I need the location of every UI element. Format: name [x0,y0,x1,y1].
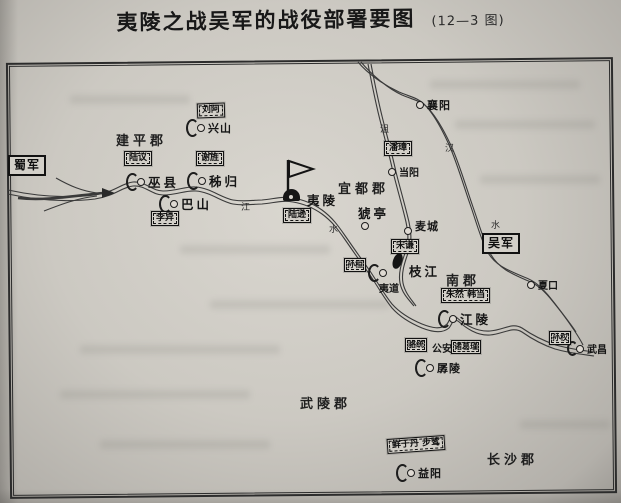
town-circle-icon [198,177,206,185]
river-fork-upper [56,178,97,193]
unit-box-liu-a: 刘阿 [197,103,226,119]
unit-box-zhu-ran-han-dang: 朱然 韩当 [441,288,490,303]
town-circle-icon [137,178,145,186]
wu-army-text: 吴军 [488,236,514,250]
place-label: 江陵 [460,309,491,328]
place-label: 当阳 [399,164,419,179]
place-xiakou: 夏口 [527,277,558,292]
river-label-jiang: 江 [241,200,250,213]
town-circle-icon [576,345,584,353]
region-changsha: 长沙郡 [487,449,538,468]
bleedthrough-smudge [70,95,190,104]
title-bar: 夷陵之战吴军的战役部署要图 (12—3 图) [0,0,621,38]
shu-advance-arrow [18,193,103,199]
river-label-shui2: 水 [491,218,500,231]
unit-box-xianyu-dan-bu-zhi: 鲜于丹 步骘 [387,435,446,454]
unit-box-li-yi: 李异 [151,211,179,226]
town-circle-icon [379,269,387,277]
town-circle-icon [170,200,178,208]
book-page: 夷陵之战吴军的战役部署要图 (12—3 图) 蜀军 吴军 建平郡 宜都郡 南郡 … [0,0,621,503]
wu-army-label: 吴军 [482,233,520,254]
place-label: 麦城 [415,218,439,234]
region-jianping: 建平郡 [116,130,167,149]
town-circle-icon [404,227,412,235]
place-label: 襄阳 [427,97,451,113]
bleedthrough-smudge [430,80,580,89]
bleedthrough-smudge [520,420,610,429]
river-label-han: 汉 [445,141,454,154]
bleedthrough-smudge [100,440,270,449]
unit-box-xie-jing: 谢旌 [196,151,224,166]
place-yiling: 夷陵 [307,190,338,209]
place-label: 武昌 [587,341,607,356]
town-circle-icon [426,364,434,372]
region-yidu: 宜都郡 [338,178,389,197]
bleedthrough-smudge [180,245,330,254]
unit-box-lu-yi: 陆议 [124,151,152,166]
place-xiangyang: 襄阳 [416,97,451,113]
shu-army-text: 蜀军 [14,158,40,172]
unit-box-song-qian: 宋谦 [391,239,419,254]
unit-box-sun-huan: 孙桓 [344,258,366,272]
place-label: 益阳 [418,465,442,481]
unit-box-lu-xun: 陆逊 [283,208,311,223]
bleedthrough-smudge [455,120,595,129]
place-label: 巴山 [181,194,212,213]
place-label: 秭归 [209,171,240,190]
place-yiyang: 益阳 [396,464,442,482]
town-circle-icon [361,222,369,230]
rivers-layer [0,0,621,503]
town-circle-icon [527,281,535,289]
unit-box-zhuge-jin: 诸葛瑾 [451,340,481,354]
town-circle-icon [416,101,424,109]
place-gongan: 公安 [432,340,452,355]
place-zhijiang: 枝江 [409,261,440,280]
shu-advance-arrowhead [102,188,115,198]
place-xingshan: 兴山 [186,119,232,137]
place-label: 巫县 [148,172,179,191]
bleedthrough-smudge [60,390,250,399]
camp-tent-icon [283,189,300,201]
river-label-ju: 沮 [380,122,389,135]
place-jiangling: 江陵 [438,309,491,328]
town-circle-icon [407,469,415,477]
town-circle-icon [449,315,457,323]
region-wuling: 武陵郡 [300,393,351,412]
place-label: 兴山 [208,120,232,136]
place-wuchang: 武昌 [567,341,607,356]
river-label-shui: 水 [329,222,338,235]
bleedthrough-smudge [210,300,390,309]
unit-box-pan-zhang: 潘璋 [384,141,412,156]
hill-mark [391,252,404,270]
region-nanjun: 南郡 [446,270,480,289]
place-dangyang: 当阳 [388,164,419,179]
town-circle-icon [197,124,205,132]
bleedthrough-smudge [480,175,600,184]
place-wuxian: 巫县 [126,172,179,191]
unit-box-sun-quan: 孙权 [549,331,571,345]
town-circle-icon [388,168,396,176]
place-label: 夏口 [538,277,558,292]
page-title: 夷陵之战吴军的战役部署要图 [116,3,415,37]
figure-number: (12—3 图) [431,9,504,29]
place-maicheng: 麦城 [404,227,439,235]
place-xiaoting: 猇亭 [358,203,389,222]
place-yidao: 夷道 [379,280,399,295]
bleedthrough-smudge [80,345,280,354]
river-fork-lower [44,196,97,211]
place-chanling: 孱陵 [415,359,461,377]
unit-box-luo-tong: 骆统 [405,338,427,352]
place-label: 孱陵 [437,360,461,376]
shu-army-label: 蜀军 [8,155,46,176]
place-zigui: 秭归 [187,171,240,190]
map-frame [6,57,617,499]
